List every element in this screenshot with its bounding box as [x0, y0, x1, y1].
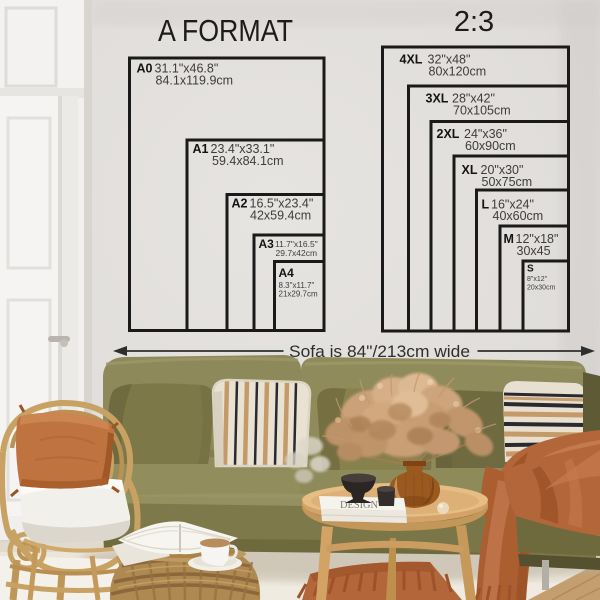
svg-text:2:3: 2:3: [454, 6, 494, 38]
svg-text:29.7x42cm: 29.7x42cm: [276, 248, 318, 258]
svg-text:2XL: 2XL: [437, 127, 460, 141]
svg-text:4XL: 4XL: [400, 53, 423, 67]
svg-text:20x30cm: 20x30cm: [527, 285, 556, 292]
svg-text:A2: A2: [232, 197, 248, 211]
svg-text:21x29.7cm: 21x29.7cm: [279, 290, 318, 299]
svg-text:42x59.4cm: 42x59.4cm: [250, 209, 311, 223]
svg-text:M: M: [504, 232, 514, 246]
svg-text:A FORMAT: A FORMAT: [158, 13, 293, 48]
svg-text:59.4x84.1cm: 59.4x84.1cm: [212, 154, 284, 168]
svg-text:60x90cm: 60x90cm: [465, 139, 516, 153]
svg-text:84.1x119.9cm: 84.1x119.9cm: [156, 74, 234, 88]
svg-text:3XL: 3XL: [426, 92, 449, 106]
svg-text:50x75cm: 50x75cm: [482, 175, 533, 189]
svg-text:L: L: [482, 198, 490, 212]
svg-text:S: S: [527, 264, 534, 275]
svg-text:8"x12": 8"x12": [527, 276, 548, 283]
svg-text:A4: A4: [279, 266, 295, 280]
svg-text:A1: A1: [193, 142, 209, 156]
svg-text:80x120cm: 80x120cm: [429, 65, 487, 79]
svg-text:A3: A3: [259, 237, 275, 251]
svg-text:30x45: 30x45: [517, 244, 551, 258]
svg-text:XL: XL: [462, 163, 478, 177]
svg-text:Sofa is 84"/213cm wide: Sofa is 84"/213cm wide: [289, 343, 470, 361]
svg-text:A0: A0: [137, 62, 153, 76]
svg-text:70x105cm: 70x105cm: [453, 104, 511, 118]
svg-text:40x60cm: 40x60cm: [493, 209, 544, 223]
